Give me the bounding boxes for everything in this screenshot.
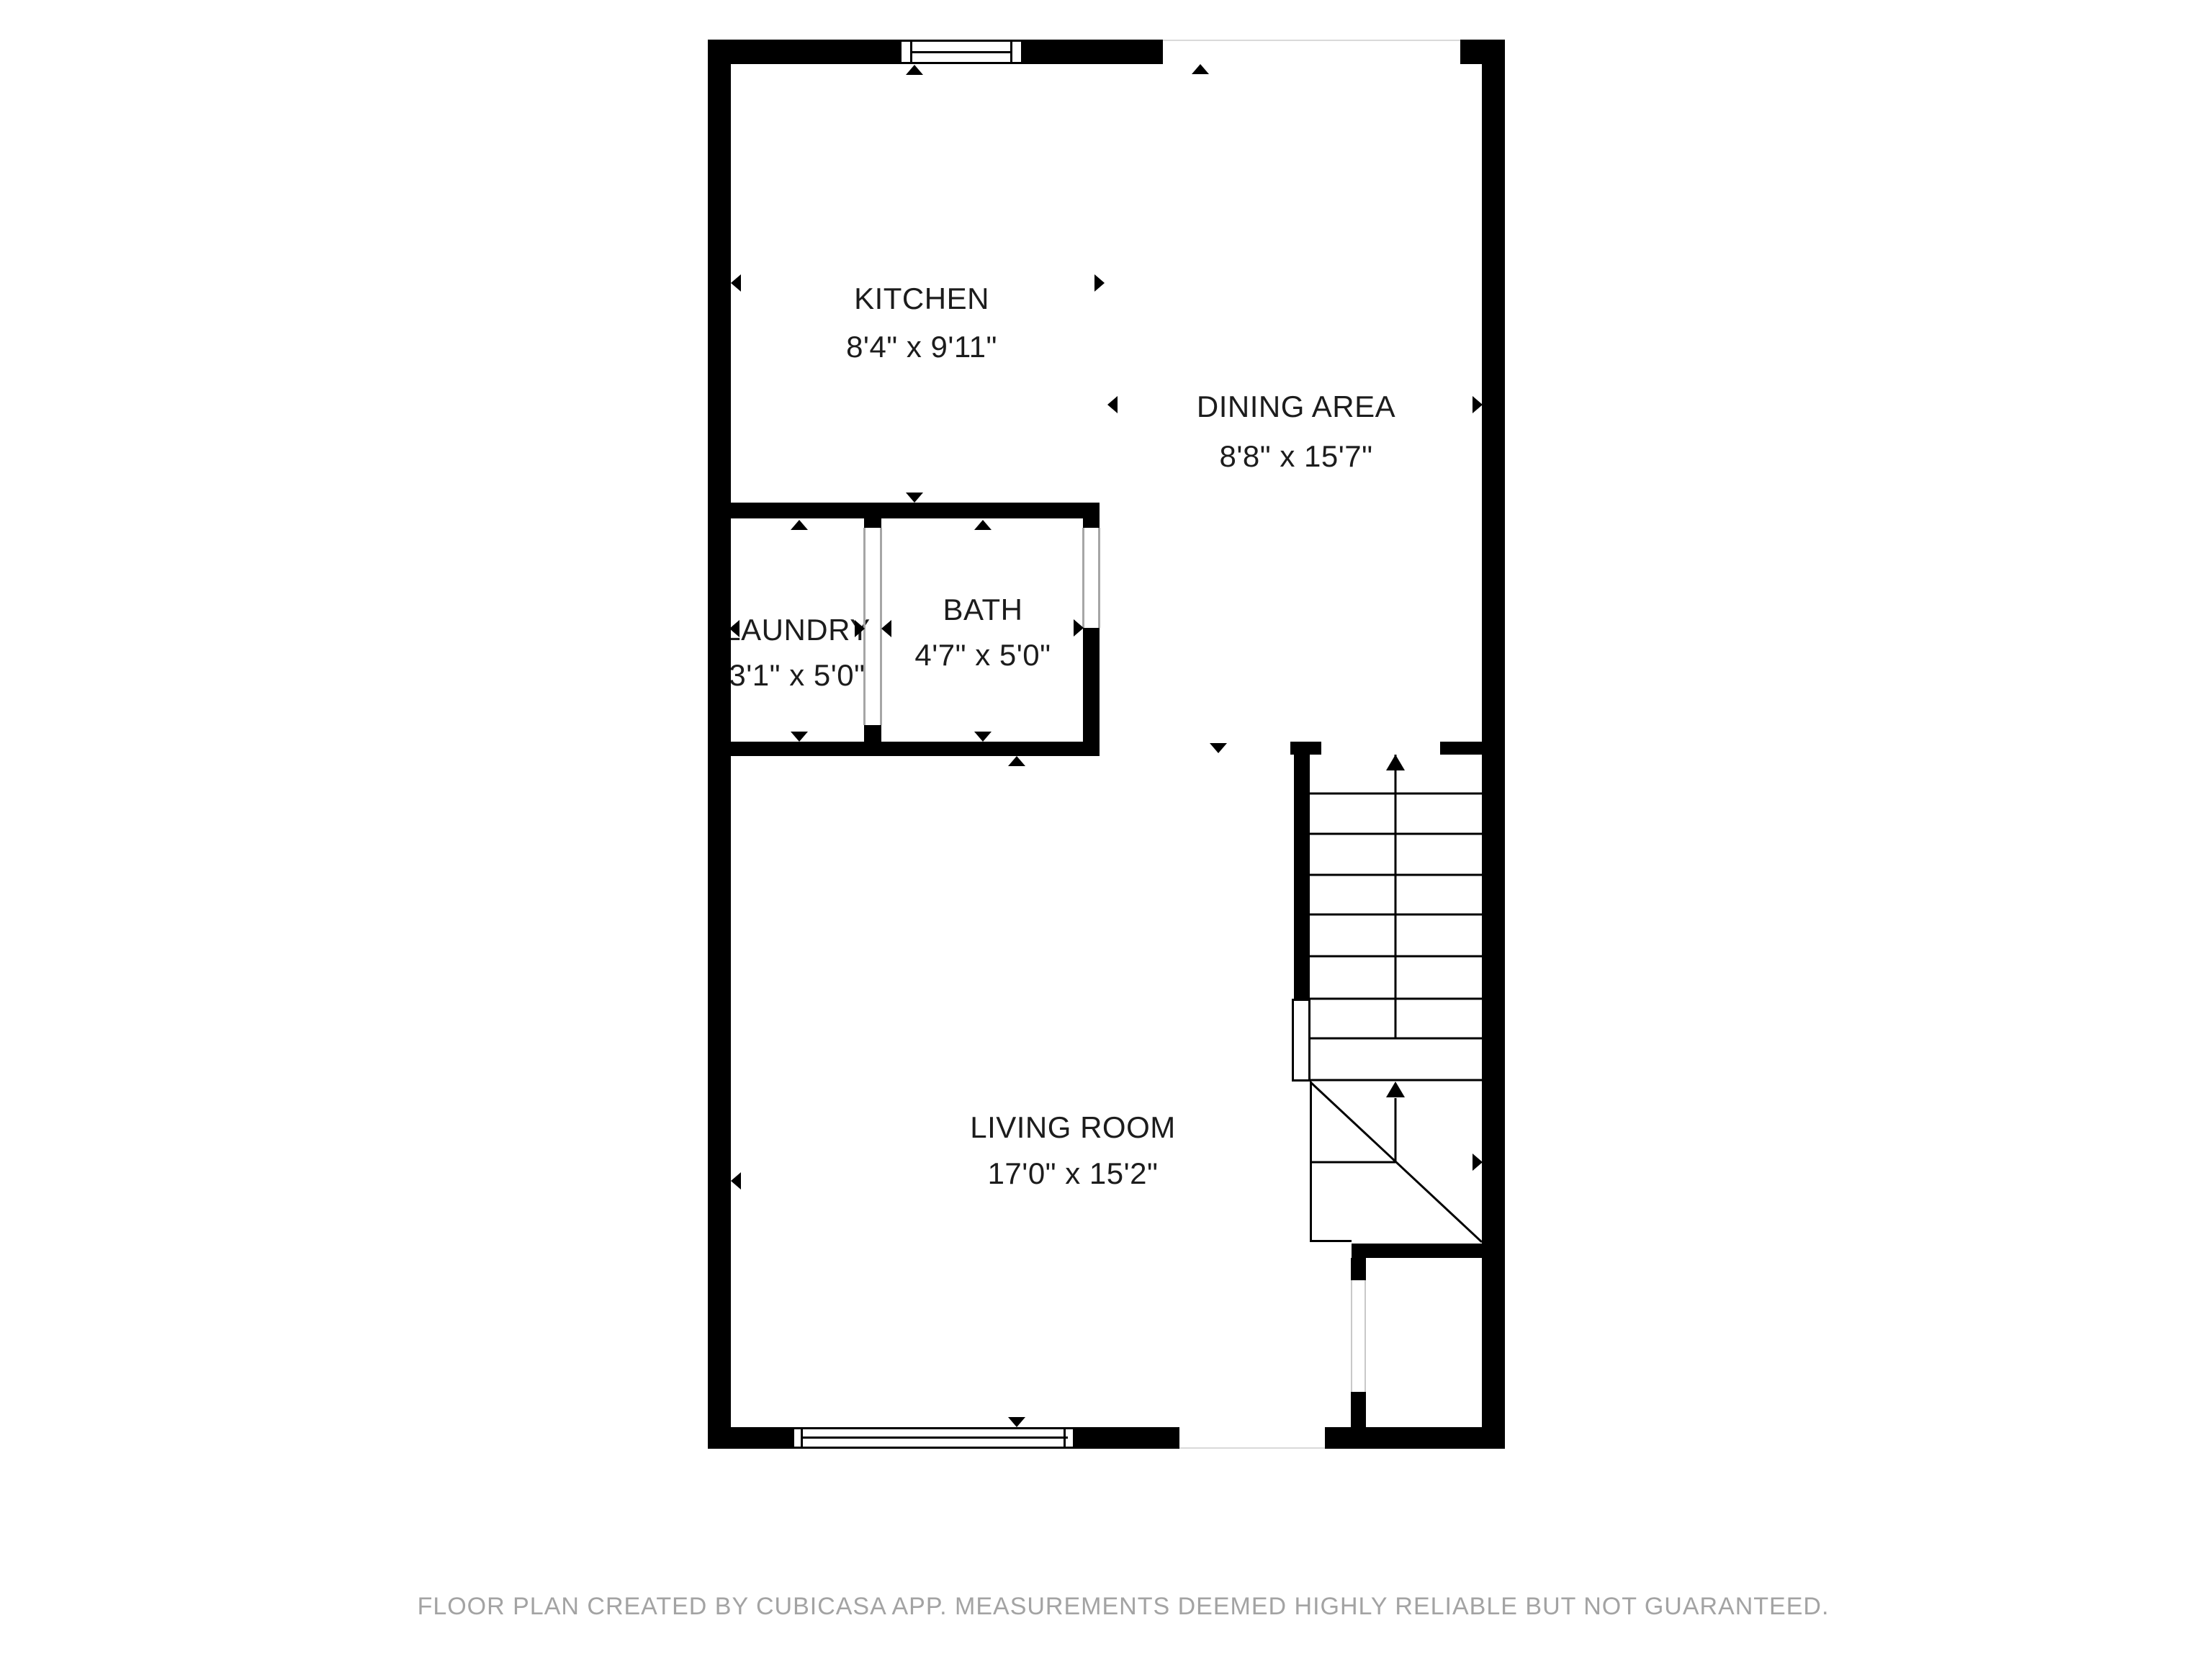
kitchen-right-arrow-icon xyxy=(1094,274,1105,292)
dining-top-arrow-icon xyxy=(1192,64,1209,74)
exterior-wall-bottom-right xyxy=(1325,1427,1505,1449)
exterior-wall-left xyxy=(708,40,731,1449)
laundry-bath-top-wall xyxy=(731,503,1100,518)
staircase xyxy=(1310,749,1482,1267)
entry-opening-jamb-right xyxy=(1364,1280,1366,1392)
living-top-arrow-icon xyxy=(1008,756,1025,766)
stair-up-arrow-icon xyxy=(1386,755,1405,770)
kitchen-label: KITCHEN xyxy=(854,282,989,316)
dining-bottom-arrow-icon xyxy=(1210,743,1227,753)
kitchen-window xyxy=(899,40,1023,64)
bath-right-stub-top xyxy=(1083,518,1100,528)
bath-dims: 4'7" x 5'0" xyxy=(914,638,1051,673)
bottom-opening-hairline xyxy=(1179,1447,1325,1449)
dining-right-arrow-icon xyxy=(1473,396,1483,413)
laundry-right-arrow-icon xyxy=(855,620,865,637)
footer-disclaimer: FLOOR PLAN CREATED BY CUBICASA APP. MEAS… xyxy=(17,1593,2212,1621)
stair-winder xyxy=(1310,1082,1482,1242)
bath-door-jamb-left xyxy=(1082,528,1084,628)
living-room-label: LIVING ROOM xyxy=(970,1110,1176,1145)
kitchen-window-mullion xyxy=(912,51,1010,53)
divider-stub-top xyxy=(864,518,881,528)
stair-right-arrow-icon xyxy=(1473,1154,1483,1171)
entry-opening-jamb-left xyxy=(1351,1280,1352,1392)
top-opening-hairline xyxy=(1163,40,1460,41)
living-bottom-arrow-icon xyxy=(1008,1417,1025,1427)
kitchen-top-arrow-icon xyxy=(906,65,923,75)
entry-room-wall-lower xyxy=(1351,1392,1366,1427)
dining-area-dims: 8'8" x 15'7" xyxy=(1220,439,1373,474)
laundry-dims: 3'1" x 5'0" xyxy=(729,658,865,693)
laundry-label: LAUNDRY xyxy=(724,613,870,647)
laundry-bath-bottom-wall xyxy=(731,742,1100,756)
living-room-window xyxy=(792,1427,1075,1449)
floor-plan-canvas: KITCHEN 8'4" x 9'11" DINING AREA 8'8" x … xyxy=(0,0,2212,1659)
exterior-wall-bottom-mid xyxy=(1075,1427,1179,1449)
bath-door-jamb-right xyxy=(1098,528,1100,628)
bath-left-arrow-icon xyxy=(881,620,891,637)
laundry-top-arrow-icon xyxy=(791,520,808,530)
bath-door-arrow-icon xyxy=(1074,619,1084,637)
stair-door xyxy=(1292,999,1310,1082)
kitchen-left-arrow-icon xyxy=(731,274,741,292)
living-room-dims: 17'0" x 15'2" xyxy=(988,1156,1159,1191)
living-window-mullion xyxy=(803,1437,1068,1439)
kitchen-dims: 8'4" x 9'11" xyxy=(846,330,997,364)
stair-lower-up-arrow-icon xyxy=(1386,1082,1405,1097)
bath-top-arrow-icon xyxy=(974,520,992,530)
dining-left-arrow-icon xyxy=(1107,396,1118,413)
laundry-left-arrow-icon xyxy=(729,620,739,637)
dining-area-label: DINING AREA xyxy=(1197,390,1395,424)
kitchen-window-jamb-right xyxy=(1010,42,1012,62)
divider-stub-bottom xyxy=(864,725,881,742)
bath-right-wall xyxy=(1083,628,1100,756)
laundry-bottom-arrow-icon xyxy=(791,732,808,742)
stair-left-wall xyxy=(1294,755,1310,999)
stair-treads xyxy=(1310,755,1482,1080)
bath-bottom-arrow-icon xyxy=(974,732,992,742)
bath-label: BATH xyxy=(943,593,1023,627)
exterior-wall-right xyxy=(1482,40,1505,1449)
kitchen-bottom-arrow-icon xyxy=(906,493,923,503)
living-left-arrow-icon xyxy=(731,1172,741,1190)
exterior-wall-bottom-left xyxy=(708,1427,792,1449)
